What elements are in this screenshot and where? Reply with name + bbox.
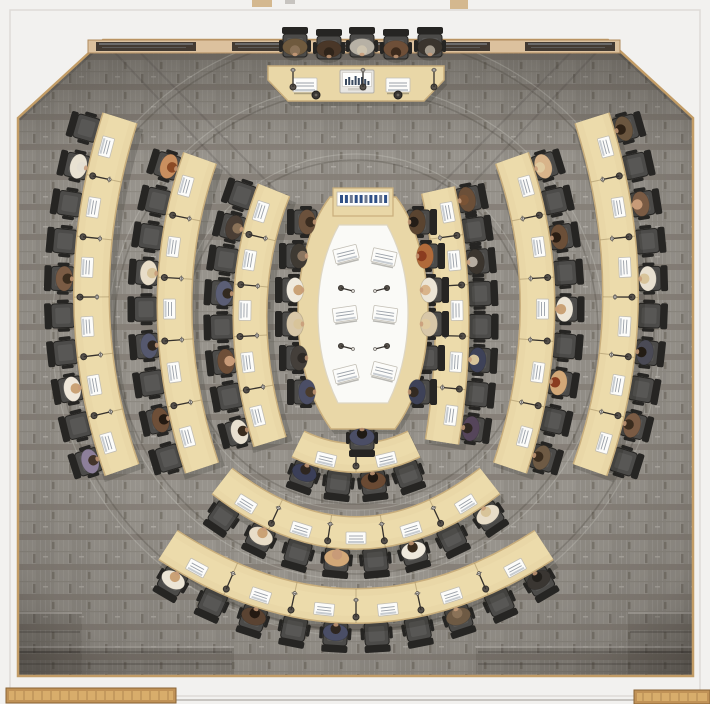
paper [618,316,631,337]
floor-plan-canvas [0,0,710,704]
laptop [340,70,374,93]
exterior-fixture [285,0,295,4]
paper [167,362,182,383]
paper [242,249,257,271]
paper [451,300,463,320]
paper [447,250,461,271]
paper [166,236,181,257]
bench [634,690,710,704]
exterior-fixture [450,0,468,9]
paper [372,305,398,324]
paper [86,197,101,219]
podium [268,27,447,106]
bench [6,688,176,703]
console [333,188,393,216]
paper [618,257,631,278]
paper [81,316,94,337]
paper [449,352,462,373]
paper [239,300,251,320]
paper [536,299,548,319]
council-chamber-top-view [0,0,710,704]
paper [293,78,317,94]
glass-panel [96,42,196,51]
paper [377,602,398,616]
paper [444,405,458,426]
glass-panel [525,42,615,51]
paper [314,602,335,616]
exterior-fixture [252,0,272,7]
paper [332,305,358,324]
paper [611,197,626,219]
paper [241,352,255,373]
paper [163,299,175,319]
paper [346,532,366,544]
paper [81,257,94,278]
paper [530,362,545,383]
paper [531,236,546,257]
